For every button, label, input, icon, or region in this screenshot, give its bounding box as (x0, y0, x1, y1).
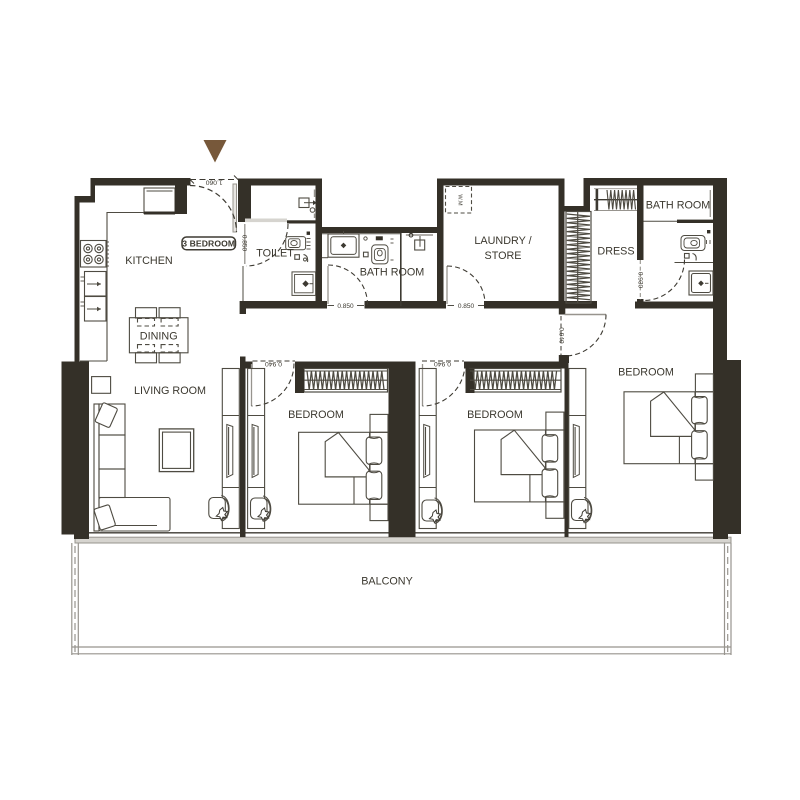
svg-text:DINING: DINING (140, 331, 178, 343)
svg-text:BATH ROOM: BATH ROOM (646, 199, 711, 211)
svg-text:W.M: W.M (457, 194, 463, 206)
svg-text:TOILET: TOILET (256, 248, 294, 260)
svg-text:BEDROOM: BEDROOM (288, 409, 344, 421)
svg-text:1.060: 1.060 (205, 178, 222, 185)
svg-text:0.850: 0.850 (241, 235, 248, 252)
svg-text:0.940: 0.940 (265, 360, 282, 367)
svg-text:3 BEDROOM: 3 BEDROOM (182, 239, 235, 249)
svg-text:0.850: 0.850 (337, 303, 354, 310)
svg-text:LIVING ROOM: LIVING ROOM (134, 385, 206, 397)
svg-text:0.940: 0.940 (558, 327, 565, 344)
svg-text:0.850: 0.850 (458, 303, 475, 310)
svg-text:LAUNDRY /: LAUNDRY / (474, 235, 531, 247)
svg-text:BATH ROOM: BATH ROOM (360, 267, 425, 279)
svg-text:BEDROOM: BEDROOM (467, 409, 523, 421)
svg-text:BEDROOM: BEDROOM (618, 367, 674, 379)
svg-text:STORE: STORE (485, 250, 522, 262)
svg-text:0.940: 0.940 (434, 360, 451, 367)
svg-text:0.930: 0.930 (637, 272, 644, 289)
svg-text:BALCONY: BALCONY (361, 576, 413, 588)
svg-text:KITCHEN: KITCHEN (125, 255, 172, 267)
svg-text:DRESS: DRESS (597, 246, 634, 258)
